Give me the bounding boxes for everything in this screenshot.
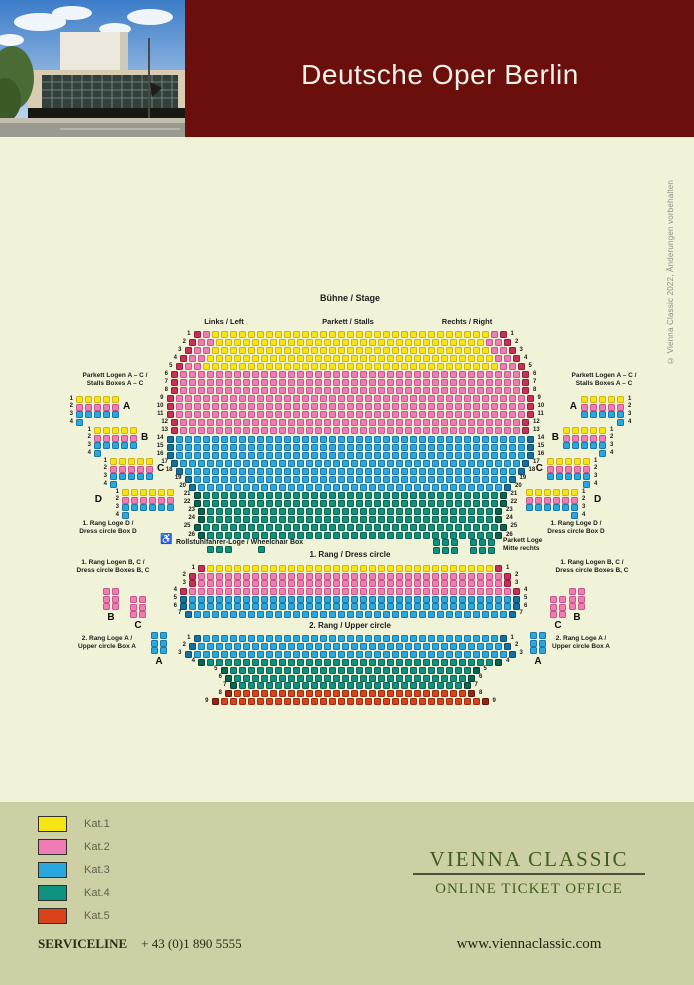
- seat: [556, 466, 563, 473]
- seat: [500, 403, 507, 410]
- brand-divider: [413, 873, 645, 875]
- seat: [414, 659, 421, 666]
- seat: [486, 565, 493, 572]
- seat: [239, 611, 246, 618]
- seat: [275, 651, 282, 658]
- seat: [486, 588, 493, 595]
- seat: [428, 500, 435, 507]
- seat: [500, 452, 507, 459]
- seat: [401, 524, 408, 531]
- box-letter: C: [529, 464, 543, 474]
- seat: [387, 603, 394, 610]
- row-number: 25: [511, 523, 518, 530]
- row-number: 19: [520, 475, 527, 482]
- seat: [365, 395, 372, 402]
- seat: [468, 573, 475, 580]
- seat: [342, 355, 349, 362]
- seat: [464, 468, 471, 475]
- seat: [428, 524, 435, 531]
- seat: [351, 419, 358, 426]
- seat: [342, 508, 349, 515]
- seat: [530, 640, 537, 647]
- seat: [293, 403, 300, 410]
- seat: [482, 500, 489, 507]
- seat: [198, 643, 205, 650]
- seat: [477, 603, 484, 610]
- seat: [356, 452, 363, 459]
- seat: [234, 675, 241, 682]
- seat: [311, 524, 318, 531]
- seat: [365, 698, 372, 705]
- seat: [338, 611, 345, 618]
- seat: [212, 331, 219, 338]
- seat: [410, 651, 417, 658]
- seat: [311, 411, 318, 418]
- seat: [500, 651, 507, 658]
- seat: [315, 573, 322, 580]
- seat: [320, 403, 327, 410]
- seat: [333, 659, 340, 666]
- seat: [243, 596, 250, 603]
- seat: [423, 659, 430, 666]
- rang2-box-label-right: 2. Rang Loge A / Upper circle Box A: [552, 635, 610, 651]
- seat: [441, 596, 448, 603]
- seat: [378, 565, 385, 572]
- seat: [257, 476, 264, 483]
- seat: [342, 427, 349, 434]
- seat: [513, 460, 520, 467]
- seat: [279, 565, 286, 572]
- seat: [464, 651, 471, 658]
- seat: [306, 355, 313, 362]
- seat: [571, 489, 578, 496]
- seat: [207, 427, 214, 434]
- seat: [130, 596, 137, 603]
- seat: [248, 468, 255, 475]
- seat: [230, 500, 237, 507]
- seat: [374, 682, 381, 689]
- seat: [396, 387, 403, 394]
- seat: [374, 395, 381, 402]
- seat: [221, 476, 228, 483]
- row-number: 21: [511, 491, 518, 498]
- seat: [599, 427, 606, 434]
- seat: [423, 690, 430, 697]
- copyright-note: © Vienna Classic 2022, Änderungen vorbeh…: [666, 150, 675, 365]
- seat: [351, 339, 358, 346]
- seat: [194, 651, 201, 658]
- seat: [212, 395, 219, 402]
- seat: [414, 387, 421, 394]
- seat: [257, 611, 264, 618]
- row-number: 5: [202, 666, 218, 673]
- seat: [459, 603, 466, 610]
- seat: [351, 659, 358, 666]
- seat: [198, 339, 205, 346]
- seat: [270, 484, 277, 491]
- seat: [306, 427, 313, 434]
- seat: [410, 444, 417, 451]
- seat: [437, 524, 444, 531]
- seat: [441, 427, 448, 434]
- seat: [365, 452, 372, 459]
- row-number: 1: [506, 565, 509, 572]
- seat: [221, 444, 228, 451]
- seat: [423, 379, 430, 386]
- seat: [450, 588, 457, 595]
- seat: [252, 516, 259, 523]
- seat: [225, 508, 232, 515]
- seat: [225, 371, 232, 378]
- seat: [320, 667, 327, 674]
- seat: [103, 596, 110, 603]
- seat: [437, 411, 444, 418]
- seat: [374, 403, 381, 410]
- seat: [495, 516, 502, 523]
- row-number: 9: [538, 395, 541, 402]
- seat: [230, 452, 237, 459]
- seat: [216, 580, 223, 587]
- seat: [131, 497, 138, 504]
- seat: [248, 500, 255, 507]
- seat: [270, 603, 277, 610]
- label-line: Parkett Logen A – C /: [572, 372, 637, 380]
- seat: [284, 403, 291, 410]
- seat: [221, 611, 228, 618]
- seat: [234, 371, 241, 378]
- seat: [243, 516, 250, 523]
- seat: [468, 675, 475, 682]
- seat: [423, 508, 430, 515]
- seat: [198, 419, 205, 426]
- seat: [284, 476, 291, 483]
- seat: [518, 452, 525, 459]
- seat: [128, 466, 135, 473]
- seat: [414, 588, 421, 595]
- seat: [216, 603, 223, 610]
- seat: [333, 596, 340, 603]
- seat: [185, 444, 192, 451]
- seat: [488, 547, 495, 554]
- box-letter: D: [594, 495, 601, 505]
- seat: [423, 643, 430, 650]
- seat: [252, 387, 259, 394]
- seat: [387, 355, 394, 362]
- seat: [590, 411, 597, 418]
- seat: [419, 411, 426, 418]
- seat: [383, 667, 390, 674]
- seat: [369, 588, 376, 595]
- seat: [293, 452, 300, 459]
- seat: [468, 419, 475, 426]
- row-number: 2: [515, 572, 518, 579]
- seat: [428, 395, 435, 402]
- row-number: 1: [628, 396, 631, 403]
- seat: [293, 444, 300, 451]
- seat: [261, 603, 268, 610]
- seat: [477, 588, 484, 595]
- seat: [392, 468, 399, 475]
- seat: [275, 436, 282, 443]
- seat: [513, 379, 520, 386]
- seat: [410, 436, 417, 443]
- seat: [306, 643, 313, 650]
- seat: [207, 387, 214, 394]
- seat: [396, 508, 403, 515]
- seat: [257, 667, 264, 674]
- seat: [207, 580, 214, 587]
- seat: [347, 436, 354, 443]
- seat: [234, 643, 241, 650]
- seat: [437, 331, 444, 338]
- seat: [383, 524, 390, 531]
- seat: [261, 532, 268, 539]
- seat: [491, 611, 498, 618]
- seat: [477, 419, 484, 426]
- seat: [112, 442, 119, 449]
- seat: [320, 395, 327, 402]
- seat: [356, 500, 363, 507]
- seat: [297, 484, 304, 491]
- seat: [94, 435, 101, 442]
- seat: [342, 573, 349, 580]
- seat: [491, 500, 498, 507]
- label-line: Stalls Boxes A – C: [83, 380, 148, 388]
- seat: [261, 588, 268, 595]
- seat: [513, 588, 520, 595]
- seat: [495, 573, 502, 580]
- seat: [293, 698, 300, 705]
- seat: [275, 682, 282, 689]
- seat: [257, 468, 264, 475]
- seat: [396, 379, 403, 386]
- seat: [442, 539, 449, 546]
- seat: [284, 667, 291, 674]
- seat: [297, 573, 304, 580]
- seat: [599, 442, 606, 449]
- seat: [351, 387, 358, 394]
- seat: [302, 395, 309, 402]
- seat: [513, 355, 520, 362]
- seat: [369, 580, 376, 587]
- seat: [383, 331, 390, 338]
- seat: [500, 468, 507, 475]
- seat: [311, 347, 318, 354]
- seat: [234, 580, 241, 587]
- seat: [324, 508, 331, 515]
- seat: [482, 476, 489, 483]
- seat: [530, 647, 537, 654]
- seat: [477, 460, 484, 467]
- seat: [347, 524, 354, 531]
- seat: [243, 573, 250, 580]
- seat: [504, 484, 511, 491]
- seat: [119, 466, 126, 473]
- seat: [329, 444, 336, 451]
- seat: [257, 347, 264, 354]
- seat: [387, 580, 394, 587]
- seat: [410, 476, 417, 483]
- seat: [176, 436, 183, 443]
- seat: [302, 651, 309, 658]
- seat: [509, 363, 516, 370]
- seat: [239, 492, 246, 499]
- seat: [347, 492, 354, 499]
- seat: [459, 516, 466, 523]
- seat: [140, 489, 147, 496]
- seat: [590, 427, 597, 434]
- seat: [257, 363, 264, 370]
- seat: [137, 458, 144, 465]
- seat: [387, 508, 394, 515]
- seat: [500, 363, 507, 370]
- seat: [504, 643, 511, 650]
- seat: [279, 580, 286, 587]
- seat: [374, 436, 381, 443]
- row-number: 1: [582, 489, 585, 496]
- seat: [212, 524, 219, 531]
- row-number: 26: [506, 532, 513, 539]
- seat: [599, 411, 606, 418]
- seat: [405, 484, 412, 491]
- seat: [266, 331, 273, 338]
- seat: [401, 682, 408, 689]
- seat: [185, 452, 192, 459]
- seat: [495, 659, 502, 666]
- seat: [76, 396, 83, 403]
- seat: [306, 565, 313, 572]
- seat: [302, 436, 309, 443]
- seat: [212, 500, 219, 507]
- seat: [234, 427, 241, 434]
- seat: [306, 588, 313, 595]
- seat: [569, 588, 576, 595]
- seat: [297, 387, 304, 394]
- seat: [360, 675, 367, 682]
- seat: [432, 588, 439, 595]
- seat: [180, 427, 187, 434]
- seat: [504, 603, 511, 610]
- seat: [464, 492, 471, 499]
- seat: [243, 339, 250, 346]
- seat: [239, 667, 246, 674]
- row-number: 4: [582, 512, 585, 519]
- seat: [392, 444, 399, 451]
- legend-label: Kat.2: [84, 841, 110, 853]
- seat: [257, 492, 264, 499]
- seat: [356, 524, 363, 531]
- seat: [522, 419, 529, 426]
- seat: [365, 492, 372, 499]
- seat: [473, 500, 480, 507]
- seat: [522, 379, 529, 386]
- seat: [329, 667, 336, 674]
- row-number: 2: [75, 434, 91, 441]
- seat: [459, 588, 466, 595]
- seat: [110, 458, 117, 465]
- seat: [342, 379, 349, 386]
- seat: [160, 647, 167, 654]
- seat: [423, 371, 430, 378]
- seat: [450, 371, 457, 378]
- seat: [432, 371, 439, 378]
- seat: [414, 565, 421, 572]
- seat: [446, 411, 453, 418]
- seat: [374, 492, 381, 499]
- label-line: 2. Rang Loge A /: [552, 635, 610, 643]
- seat: [464, 363, 471, 370]
- seat: [252, 643, 259, 650]
- seat: [423, 580, 430, 587]
- seat: [194, 444, 201, 451]
- seat: [356, 611, 363, 618]
- row-number: 7: [166, 610, 182, 617]
- seat: [455, 635, 462, 642]
- seat: [562, 504, 569, 511]
- seat: [293, 395, 300, 402]
- seat: [423, 532, 430, 539]
- seat: [176, 411, 183, 418]
- row-number: 7: [520, 610, 523, 617]
- seat: [455, 411, 462, 418]
- seat: [387, 573, 394, 580]
- section-label-left: Links / Left: [204, 317, 244, 326]
- seat: [230, 698, 237, 705]
- row-number: 15: [538, 443, 545, 450]
- seat: [581, 411, 588, 418]
- seat: [230, 436, 237, 443]
- row-number: 13: [533, 427, 540, 434]
- seat: [360, 516, 367, 523]
- seat: [574, 466, 581, 473]
- serviceline-label: SERVICELINE: [38, 936, 127, 951]
- seat: [360, 532, 367, 539]
- seat: [526, 497, 533, 504]
- seat: [432, 573, 439, 580]
- seat: [275, 611, 282, 618]
- seat: [189, 603, 196, 610]
- seat: [464, 667, 471, 674]
- seat: [351, 603, 358, 610]
- seat: [203, 411, 210, 418]
- seat: [194, 635, 201, 642]
- row-number: 15: [148, 443, 164, 450]
- seat: [320, 651, 327, 658]
- seat: [419, 635, 426, 642]
- seat: [468, 580, 475, 587]
- seat: [513, 371, 520, 378]
- seat: [110, 466, 117, 473]
- seat: [212, 611, 219, 618]
- seat: [583, 466, 590, 473]
- seat: [450, 387, 457, 394]
- seat: [212, 363, 219, 370]
- seat: [288, 516, 295, 523]
- seat: [266, 500, 273, 507]
- seat: [547, 458, 554, 465]
- row-number: 8: [479, 690, 482, 697]
- seat: [189, 387, 196, 394]
- seat: [203, 403, 210, 410]
- seat: [234, 419, 241, 426]
- seat: [464, 444, 471, 451]
- seat: [320, 611, 327, 618]
- seat: [279, 588, 286, 595]
- seat: [338, 468, 345, 475]
- seat: [297, 690, 304, 697]
- row-number: 2: [628, 403, 631, 410]
- seat: [383, 395, 390, 402]
